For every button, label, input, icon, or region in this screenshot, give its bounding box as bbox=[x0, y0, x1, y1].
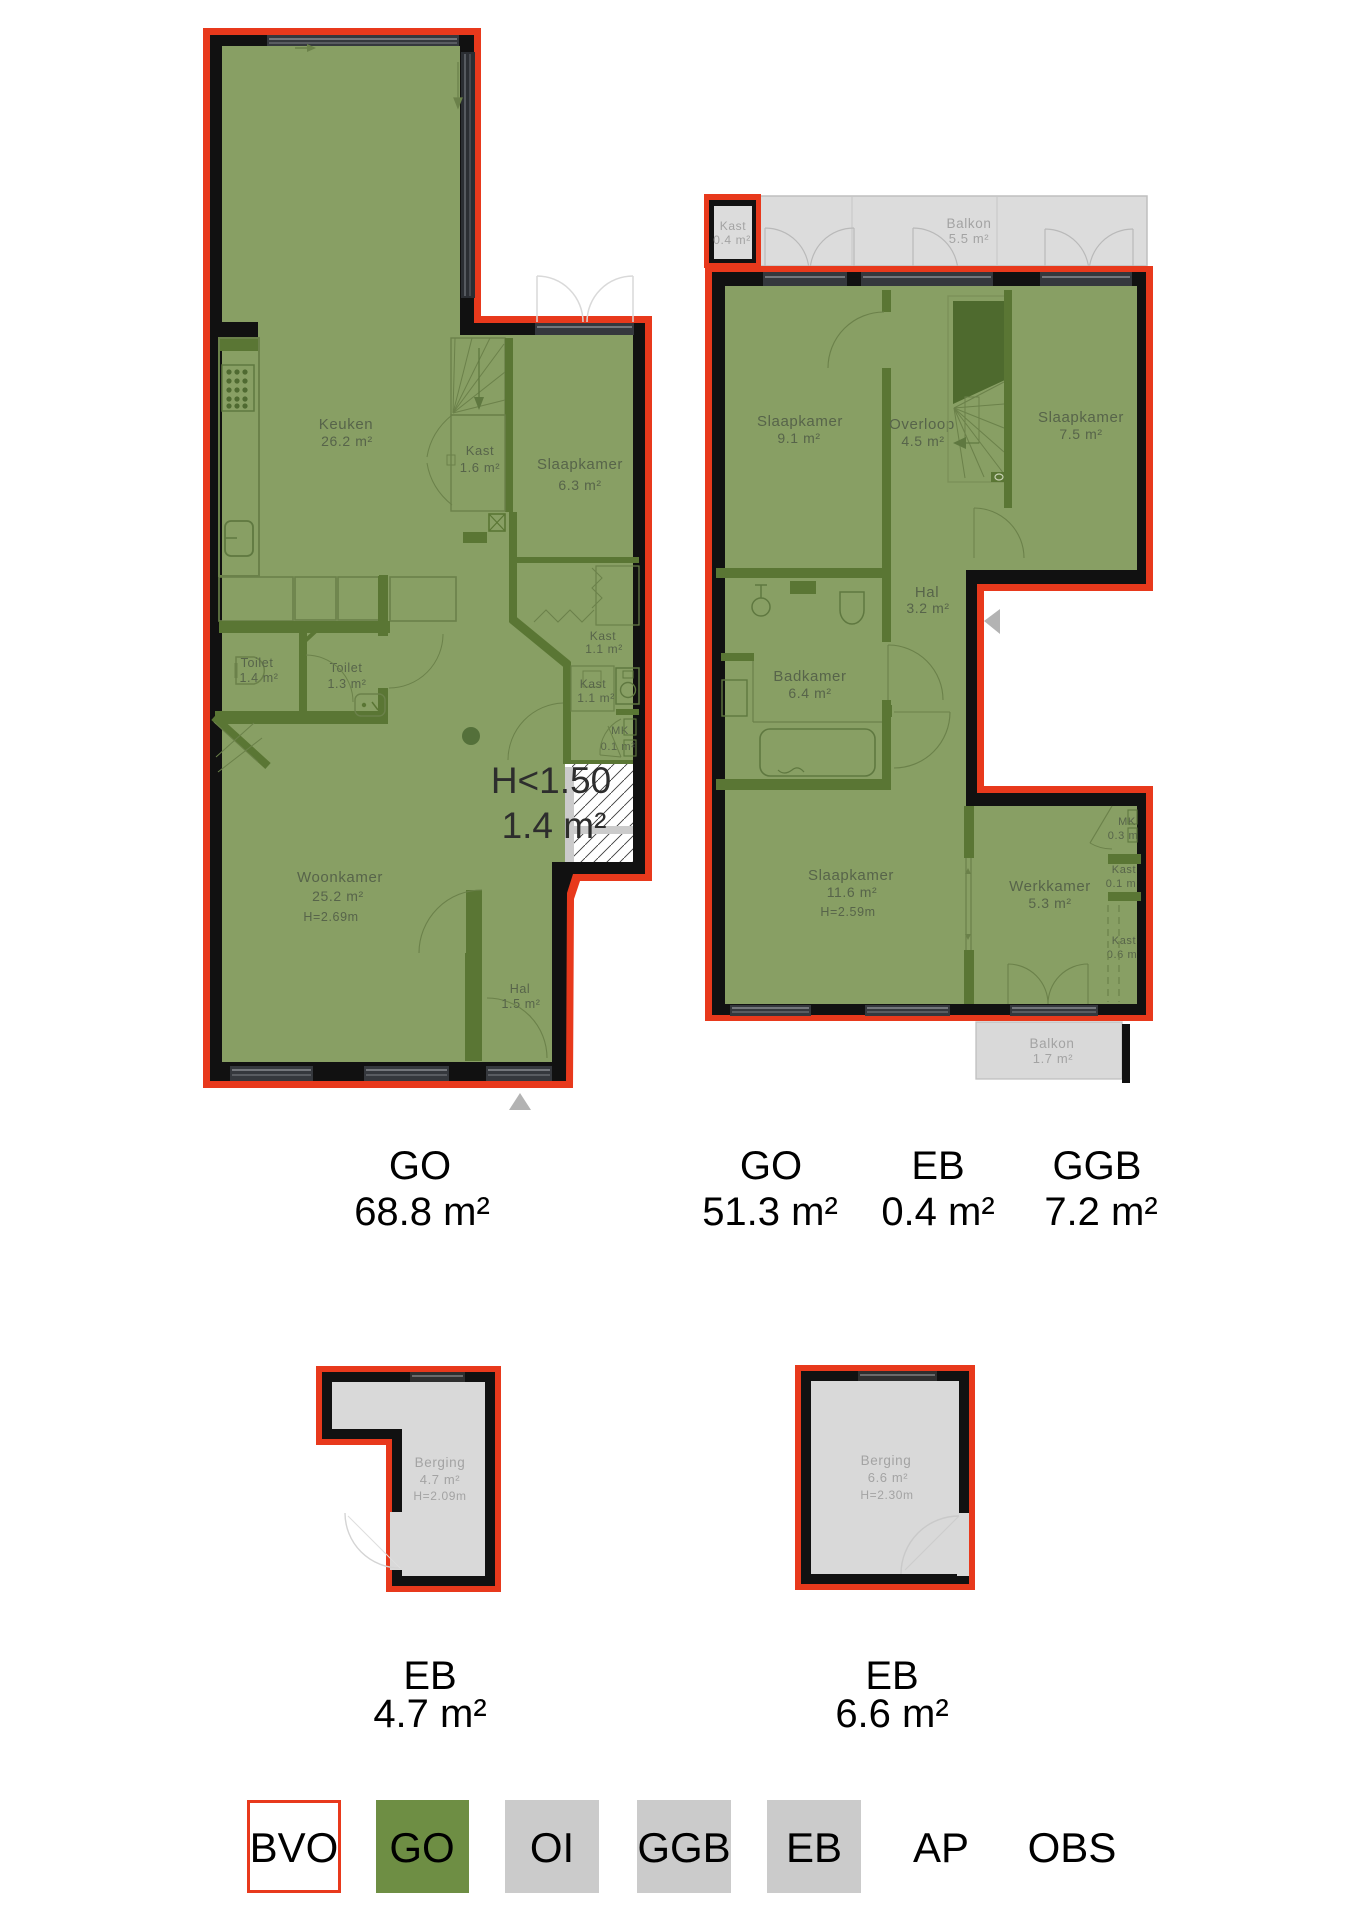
svg-text:Hal: Hal bbox=[510, 982, 531, 996]
svg-text:GO: GO bbox=[740, 1144, 802, 1188]
svg-text:3.2 m²: 3.2 m² bbox=[906, 600, 949, 616]
svg-text:6.6 m²: 6.6 m² bbox=[835, 1692, 948, 1736]
svg-text:Berging: Berging bbox=[415, 1455, 466, 1470]
svg-text:Balkon: Balkon bbox=[947, 216, 992, 231]
svg-text:H=2.09m: H=2.09m bbox=[413, 1489, 466, 1503]
svg-text:4.7 m²: 4.7 m² bbox=[420, 1472, 461, 1487]
svg-text:25.2 m²: 25.2 m² bbox=[312, 888, 364, 904]
svg-text:EB: EB bbox=[911, 1144, 964, 1188]
svg-text:26.2 m²: 26.2 m² bbox=[321, 433, 373, 449]
svg-text:Badkamer: Badkamer bbox=[773, 668, 846, 685]
svg-text:GGB: GGB bbox=[637, 1824, 730, 1871]
svg-text:0.4 m²: 0.4 m² bbox=[881, 1190, 994, 1234]
svg-text:Toilet: Toilet bbox=[241, 656, 274, 670]
svg-text:1.5 m²: 1.5 m² bbox=[501, 997, 540, 1011]
svg-text:GO: GO bbox=[389, 1824, 454, 1871]
svg-text:Kast: Kast bbox=[720, 219, 746, 233]
svg-text:Kast: Kast bbox=[580, 677, 606, 691]
svg-text:51.3 m²: 51.3 m² bbox=[702, 1190, 838, 1234]
svg-text:7.5 m²: 7.5 m² bbox=[1059, 426, 1102, 442]
svg-text:H=2.69m: H=2.69m bbox=[303, 910, 358, 924]
svg-text:OBS: OBS bbox=[1028, 1824, 1117, 1871]
svg-text:7.2 m²: 7.2 m² bbox=[1044, 1190, 1157, 1234]
svg-text:0.1 m: 0.1 m bbox=[1106, 878, 1137, 890]
svg-text:H<1.50: H<1.50 bbox=[491, 760, 611, 801]
svg-text:11.6 m²: 11.6 m² bbox=[827, 884, 878, 900]
svg-text:GO: GO bbox=[389, 1144, 451, 1188]
svg-text:Berging: Berging bbox=[861, 1453, 912, 1468]
svg-text:0.4 m²: 0.4 m² bbox=[713, 233, 751, 247]
svg-text:H=2.59m: H=2.59m bbox=[820, 905, 875, 919]
svg-text:OI: OI bbox=[530, 1824, 574, 1871]
svg-text:BVO: BVO bbox=[250, 1824, 339, 1871]
svg-text:Kast: Kast bbox=[1112, 935, 1136, 947]
svg-text:6.6 m²: 6.6 m² bbox=[868, 1470, 909, 1485]
svg-text:Slaapkamer: Slaapkamer bbox=[808, 867, 894, 884]
svg-text:Werkkamer: Werkkamer bbox=[1009, 878, 1091, 895]
svg-text:Toilet: Toilet bbox=[330, 661, 363, 675]
svg-text:AP: AP bbox=[913, 1824, 969, 1871]
svg-text:MK: MK bbox=[1118, 816, 1136, 828]
svg-text:Slaapkamer: Slaapkamer bbox=[757, 413, 843, 430]
svg-text:1.4 m²: 1.4 m² bbox=[502, 805, 607, 846]
svg-text:1.7 m²: 1.7 m² bbox=[1033, 1051, 1074, 1066]
svg-text:Kast: Kast bbox=[466, 443, 494, 458]
svg-text:Balkon: Balkon bbox=[1030, 1036, 1075, 1051]
svg-text:4.7 m²: 4.7 m² bbox=[373, 1692, 486, 1736]
svg-text:Slaapkamer: Slaapkamer bbox=[1038, 409, 1124, 426]
svg-text:Kast: Kast bbox=[1112, 864, 1136, 876]
svg-text:Overloop: Overloop bbox=[889, 416, 955, 433]
svg-text:68.8 m²: 68.8 m² bbox=[354, 1190, 490, 1234]
svg-text:1.1 m²: 1.1 m² bbox=[585, 642, 623, 656]
svg-text:Keuken: Keuken bbox=[319, 416, 373, 433]
svg-text:Kast: Kast bbox=[590, 629, 616, 643]
svg-text:0.3 m: 0.3 m bbox=[1108, 830, 1139, 842]
svg-text:5.3 m²: 5.3 m² bbox=[1028, 895, 1071, 911]
svg-text:1.1 m²: 1.1 m² bbox=[577, 691, 615, 705]
svg-text:1.6 m²: 1.6 m² bbox=[460, 460, 501, 475]
svg-text:5.5 m²: 5.5 m² bbox=[949, 231, 990, 246]
svg-text:1.4 m²: 1.4 m² bbox=[239, 671, 278, 685]
svg-text:4.5 m²: 4.5 m² bbox=[901, 433, 944, 449]
svg-text:0.1 m²: 0.1 m² bbox=[601, 741, 636, 753]
svg-text:0.6 m: 0.6 m bbox=[1107, 949, 1138, 961]
svg-text:H=2.30m: H=2.30m bbox=[860, 1488, 913, 1502]
svg-text:Hal: Hal bbox=[915, 584, 939, 601]
svg-text:GGB: GGB bbox=[1053, 1144, 1142, 1188]
svg-text:6.4 m²: 6.4 m² bbox=[788, 685, 831, 701]
svg-text:EB: EB bbox=[786, 1824, 842, 1871]
svg-text:Woonkamer: Woonkamer bbox=[297, 869, 383, 886]
svg-text:9.1 m²: 9.1 m² bbox=[777, 430, 820, 446]
svg-text:6.3 m²: 6.3 m² bbox=[558, 477, 601, 493]
svg-text:Slaapkamer: Slaapkamer bbox=[537, 456, 623, 473]
